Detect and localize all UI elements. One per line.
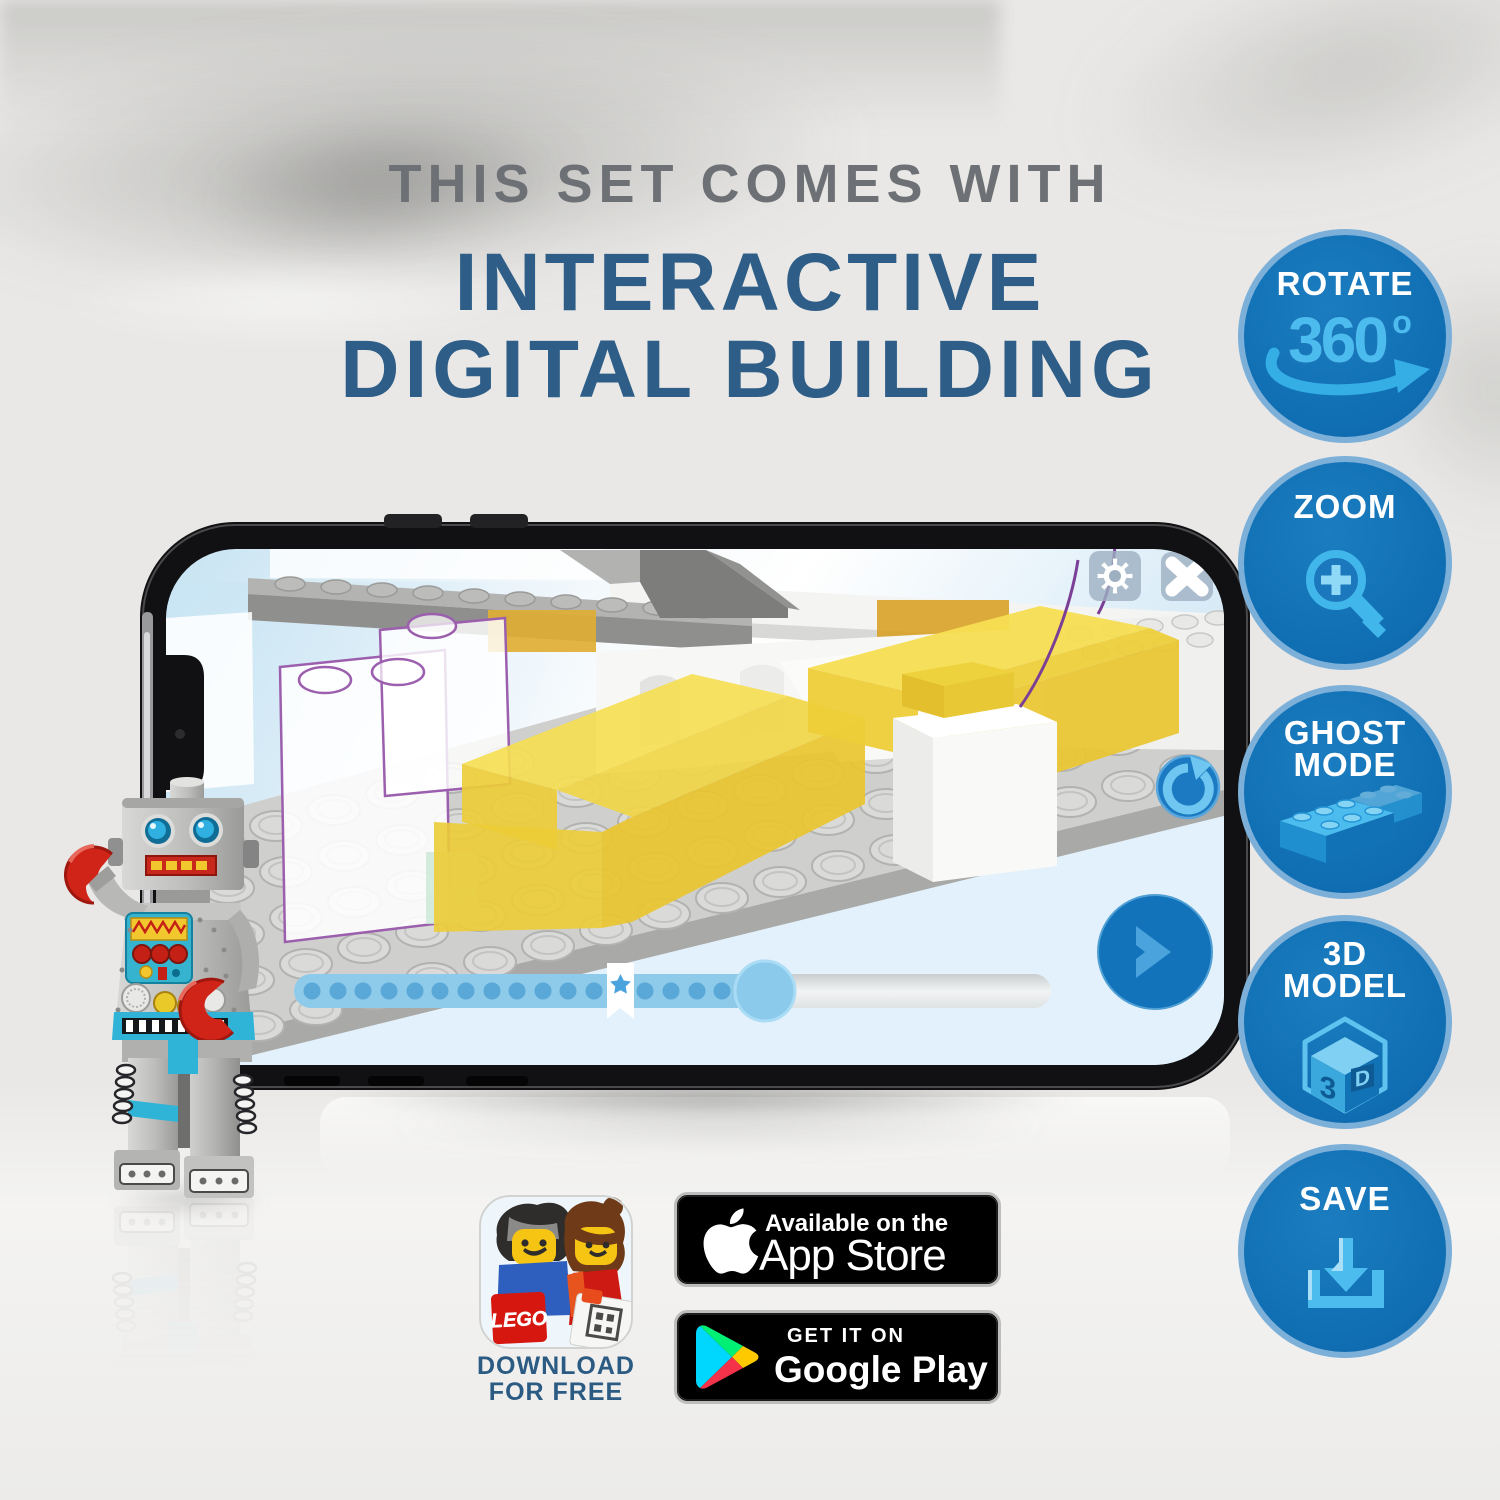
svg-text:360: 360: [1288, 304, 1386, 376]
svg-text:GET IT ON: GET IT ON: [787, 1325, 905, 1347]
svg-text:D: D: [1355, 1065, 1370, 1092]
svg-text:Google Play: Google Play: [774, 1349, 988, 1390]
svg-text:3: 3: [1320, 1069, 1337, 1107]
svg-text:o: o: [1392, 304, 1412, 340]
svg-text:LEGO: LEGO: [490, 1308, 548, 1333]
svg-text:App Store: App Store: [759, 1231, 946, 1280]
